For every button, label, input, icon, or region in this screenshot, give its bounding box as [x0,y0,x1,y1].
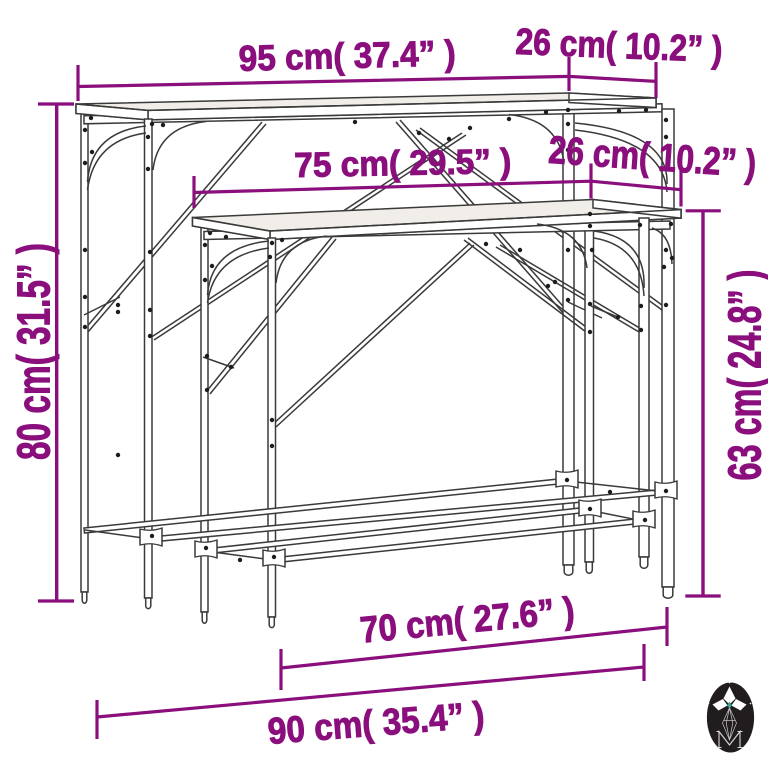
svg-text:63 cm( 24.8” ): 63 cm( 24.8” ) [719,270,768,481]
svg-text:95 cm( 37.4” ): 95 cm( 37.4” ) [238,32,456,79]
svg-text:80 cm( 31.5” ): 80 cm( 31.5” ) [8,243,60,460]
svg-text:75 cm( 29.5” ): 75 cm( 29.5” ) [294,142,512,185]
svg-text:26 cm( 10.2” ): 26 cm( 10.2” ) [515,21,723,70]
